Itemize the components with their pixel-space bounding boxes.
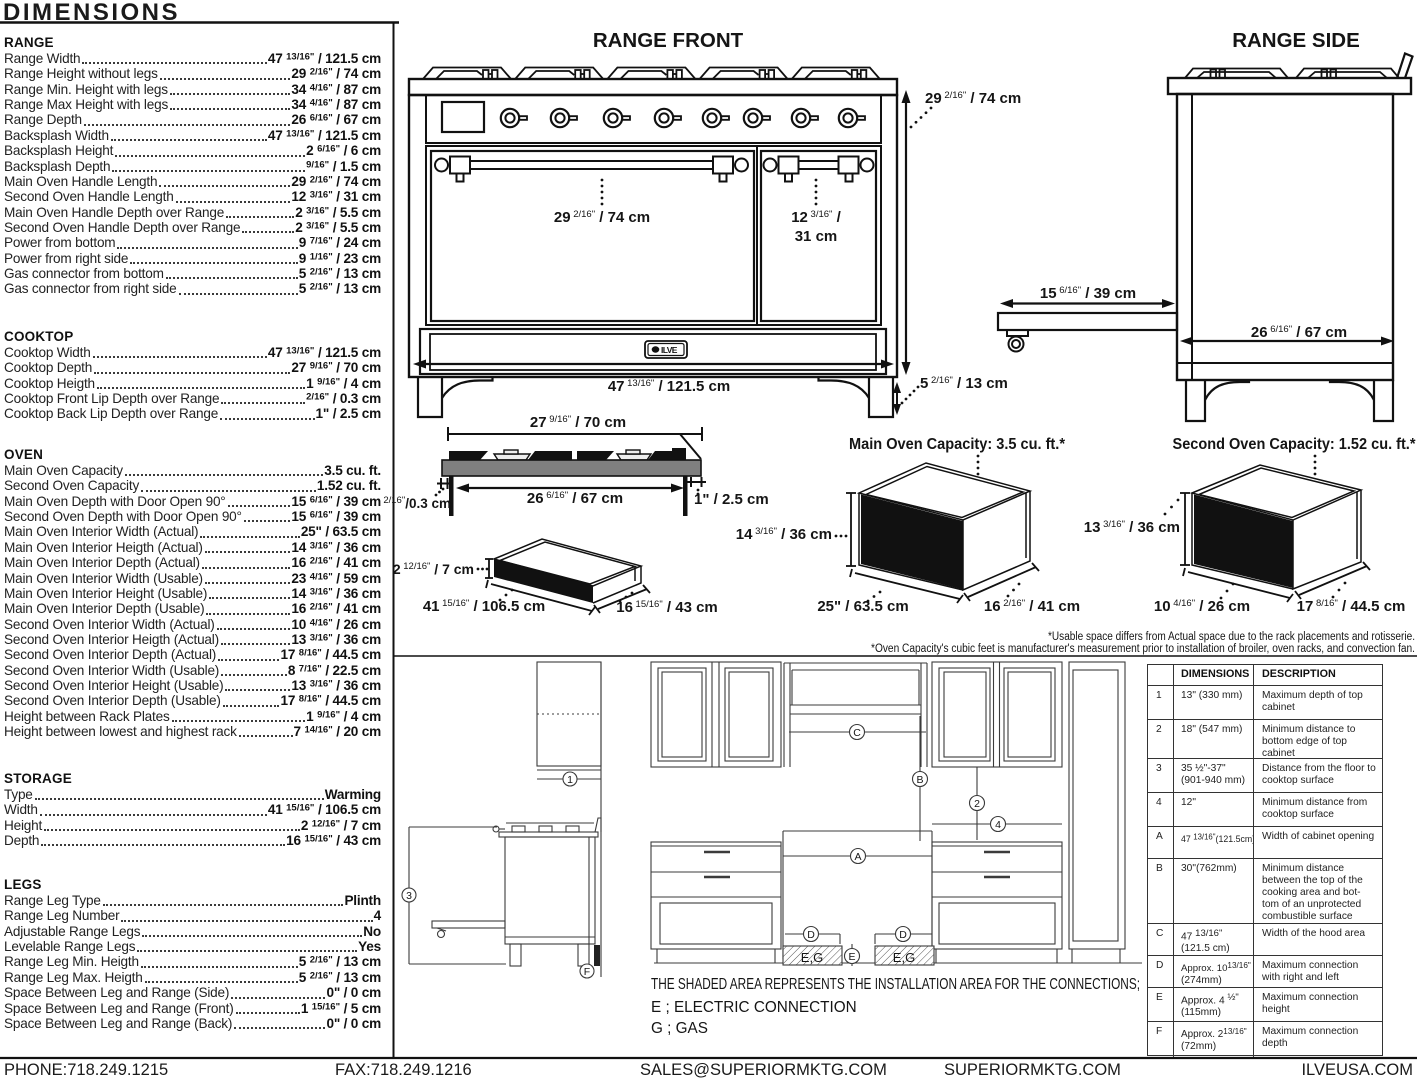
svg-text:B: B bbox=[916, 774, 923, 786]
svg-text:17 8/16" / 44.5 cm: 17 8/16" / 44.5 cm bbox=[1297, 598, 1406, 615]
svg-text:3: 3 bbox=[406, 890, 412, 902]
svg-text:F: F bbox=[584, 966, 590, 978]
svg-text:C: C bbox=[853, 727, 861, 739]
svg-text:10 4/16" / 26 cm: 10 4/16" / 26 cm bbox=[1154, 598, 1250, 615]
svg-text:26 6/16" / 67 cm: 26 6/16" / 67 cm bbox=[527, 490, 623, 507]
svg-text:25" / 63.5 cm: 25" / 63.5 cm bbox=[817, 598, 908, 615]
svg-text:5 2/16" / 13 cm: 5 2/16" / 13 cm bbox=[920, 375, 1008, 392]
svg-text:47 13/16" / 121.5 cm: 47 13/16" / 121.5 cm bbox=[608, 378, 730, 395]
svg-text:29 2/16" / 74 cm: 29 2/16" / 74 cm bbox=[925, 90, 1021, 107]
svg-text:G ; GAS: G ; GAS bbox=[651, 1020, 708, 1037]
svg-text:THE SHADED AREA REPRESENTS THE: THE SHADED AREA REPRESENTS THE INSTALLAT… bbox=[651, 976, 1140, 993]
svg-text:RANGE FRONT: RANGE FRONT bbox=[593, 29, 744, 52]
svg-text:Main Oven Capacity: 3.5 cu. ft: Main Oven Capacity: 3.5 cu. ft.* bbox=[849, 436, 1066, 453]
svg-text:4: 4 bbox=[995, 819, 1001, 831]
svg-text:*Usable space differs from Act: *Usable space differs from Actual space … bbox=[1048, 631, 1415, 643]
svg-text:2: 2 bbox=[974, 798, 980, 810]
svg-text:27 9/16" / 70 cm: 27 9/16" / 70 cm bbox=[530, 414, 626, 431]
svg-text:E,G: E,G bbox=[893, 950, 915, 965]
svg-text:D: D bbox=[899, 929, 907, 941]
svg-text:12 3/16" /: 12 3/16" / bbox=[791, 209, 841, 226]
svg-text:26 6/16" / 67 cm: 26 6/16" / 67 cm bbox=[1251, 324, 1347, 341]
svg-text:*Oven Capacity's cubic feet is: *Oven Capacity's cubic feet is manufactu… bbox=[871, 643, 1415, 655]
svg-text:E,G: E,G bbox=[801, 950, 823, 965]
svg-text:14 3/16" / 36 cm: 14 3/16" / 36 cm bbox=[736, 526, 832, 543]
svg-text:13 3/16" / 36 cm: 13 3/16" / 36 cm bbox=[1084, 519, 1180, 536]
svg-text:E: E bbox=[848, 951, 855, 963]
svg-text:RANGE SIDE: RANGE SIDE bbox=[1232, 29, 1360, 52]
svg-text:1" / 2.5 cm: 1" / 2.5 cm bbox=[694, 491, 769, 508]
svg-text:2 12/16" / 7 cm: 2 12/16" / 7 cm bbox=[393, 561, 474, 577]
svg-text:31 cm: 31 cm bbox=[795, 228, 838, 245]
svg-text:16 15/16" / 43 cm: 16 15/16" / 43 cm bbox=[616, 599, 718, 616]
svg-text:E ; ELECTRIC CONNECTION: E ; ELECTRIC CONNECTION bbox=[651, 999, 857, 1016]
svg-text:41 15/16" / 106.5 cm: 41 15/16" / 106.5 cm bbox=[423, 598, 545, 615]
svg-text:Second Oven Capacity: 1.52 cu.: Second Oven Capacity: 1.52 cu. ft.* bbox=[1173, 436, 1417, 453]
svg-text:29 2/16" / 74 cm: 29 2/16" / 74 cm bbox=[554, 209, 650, 226]
svg-text:15 6/16" / 39 cm: 15 6/16" / 39 cm bbox=[1040, 285, 1136, 302]
svg-text:A: A bbox=[854, 851, 861, 863]
svg-text:16 2/16" / 41 cm: 16 2/16" / 41 cm bbox=[984, 598, 1080, 615]
svg-text:ILVE: ILVE bbox=[661, 345, 678, 355]
svg-text:1: 1 bbox=[567, 774, 573, 786]
svg-text:D: D bbox=[807, 929, 815, 941]
